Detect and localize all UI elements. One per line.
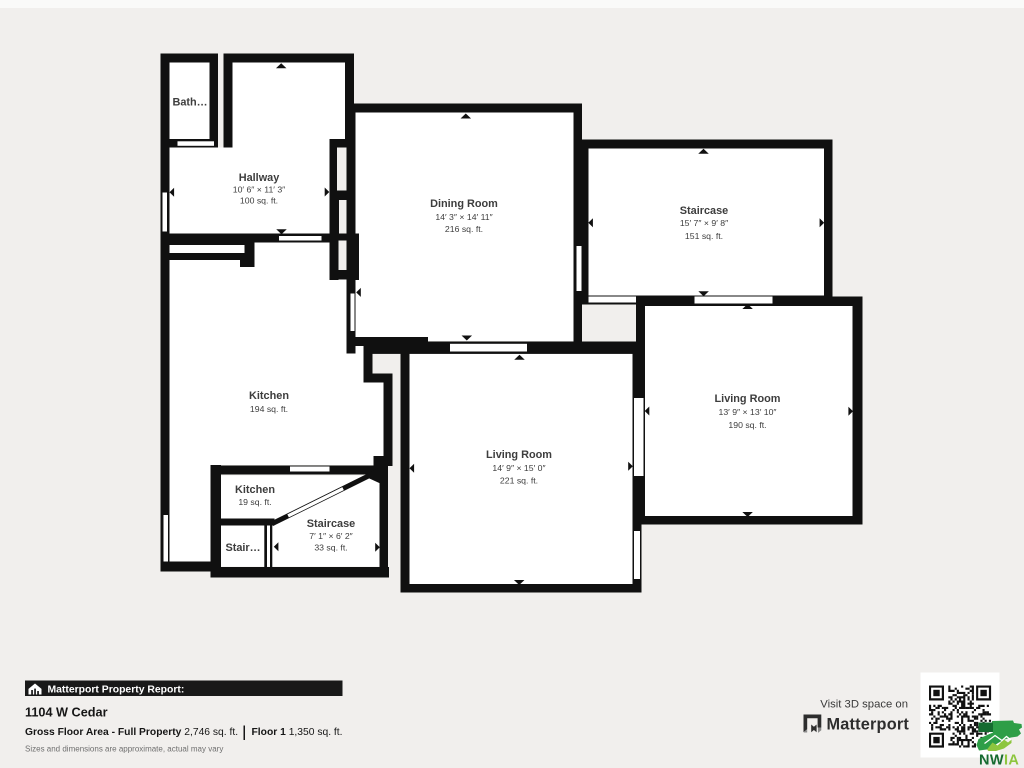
svg-text:190 sq. ft.: 190 sq. ft.: [728, 420, 766, 430]
svg-text:Dining Room: Dining Room: [430, 198, 498, 210]
svg-text:10′ 6″ × 11′ 3″: 10′ 6″ × 11′ 3″: [233, 185, 285, 195]
svg-text:100 sq. ft.: 100 sq. ft.: [240, 196, 278, 206]
svg-text:Matterport Property Report:: Matterport Property Report:: [48, 684, 185, 695]
svg-text:151 sq. ft.: 151 sq. ft.: [685, 231, 723, 241]
svg-text:33 sq. ft.: 33 sq. ft.: [314, 543, 347, 553]
svg-text:Staircase: Staircase: [680, 205, 728, 217]
svg-text:Kitchen: Kitchen: [235, 484, 275, 496]
svg-text:Bath…: Bath…: [172, 97, 207, 109]
svg-text:7′ 1″ × 6′ 2″: 7′ 1″ × 6′ 2″: [309, 531, 352, 541]
svg-text:216 sq. ft.: 216 sq. ft.: [445, 224, 483, 234]
svg-text:Hallway: Hallway: [239, 172, 280, 184]
svg-text:NWIA: NWIA: [979, 753, 1019, 768]
svg-text:15′ 7″ × 9′ 8″: 15′ 7″ × 9′ 8″: [680, 218, 728, 228]
svg-text:Gross Floor Area - Full Proper: Gross Floor Area - Full Property 2,746 s…: [25, 727, 238, 738]
svg-text:Visit 3D space on: Visit 3D space on: [820, 699, 908, 711]
svg-text:194 sq. ft.: 194 sq. ft.: [250, 404, 288, 414]
svg-text:221 sq. ft.: 221 sq. ft.: [500, 476, 538, 486]
svg-text:Kitchen: Kitchen: [249, 390, 289, 402]
svg-text:Living Room: Living Room: [715, 393, 781, 405]
svg-text:Floor 1 1,350 sq. ft.: Floor 1 1,350 sq. ft.: [252, 727, 343, 738]
svg-text:Staircase: Staircase: [307, 518, 355, 530]
svg-text:19 sq. ft.: 19 sq. ft.: [238, 497, 271, 507]
svg-text:13′ 9″ × 13′ 10″: 13′ 9″ × 13′ 10″: [719, 407, 777, 417]
svg-text:Living Room: Living Room: [486, 449, 552, 461]
svg-text:Matterport: Matterport: [827, 716, 910, 734]
svg-text:1104 W Cedar: 1104 W Cedar: [25, 706, 108, 720]
svg-text:Sizes and dimensions are appro: Sizes and dimensions are approximate, ac…: [25, 745, 223, 754]
svg-text:14′ 3″ × 14′ 11″: 14′ 3″ × 14′ 11″: [435, 212, 492, 222]
svg-text:Stair…: Stair…: [225, 542, 260, 554]
svg-text:14′ 9″ × 15′ 0″: 14′ 9″ × 15′ 0″: [492, 463, 545, 473]
